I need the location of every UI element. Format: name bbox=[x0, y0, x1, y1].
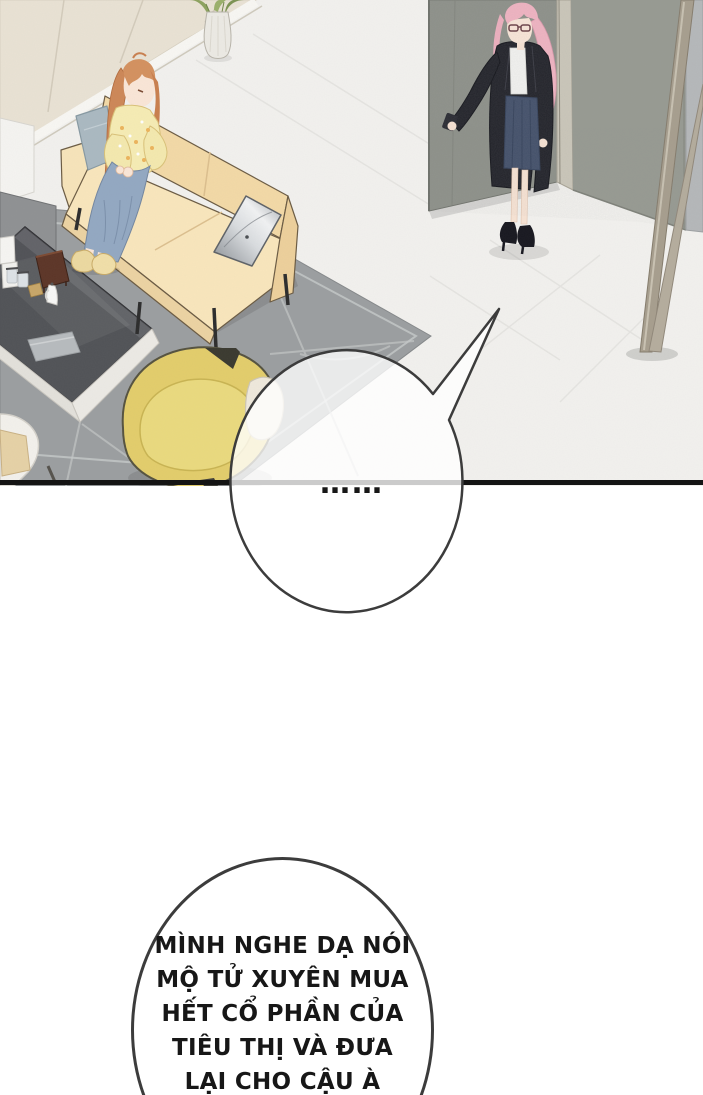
dialogue-line: TIÊU THỊ VÀ ĐƯA bbox=[134, 1031, 431, 1065]
dialogue-line: MỘ TỬ XUYÊN MUA bbox=[134, 963, 431, 997]
ellipsis-text: …… bbox=[236, 466, 468, 506]
dialogue-text: MÌNH NGHE DẠ NÓI MỘ TỬ XUYÊN MUA HẾT CỔ … bbox=[134, 929, 431, 1095]
living-room-scene bbox=[0, 0, 703, 486]
speech-bubble-dialogue: MÌNH NGHE DẠ NÓI MỘ TỬ XUYÊN MUA HẾT CỔ … bbox=[131, 857, 434, 1095]
dialogue-line: HẾT CỔ PHẦN CỦA bbox=[134, 997, 431, 1031]
comic-page: …… MÌNH NGHE DẠ NÓI MỘ TỬ XUYÊN MUA HẾT … bbox=[0, 0, 703, 1095]
dialogue-line: LẠI CHO CẬU À bbox=[134, 1065, 431, 1095]
comic-panel bbox=[0, 0, 703, 486]
dialogue-line: MÌNH NGHE DẠ NÓI bbox=[134, 929, 431, 963]
